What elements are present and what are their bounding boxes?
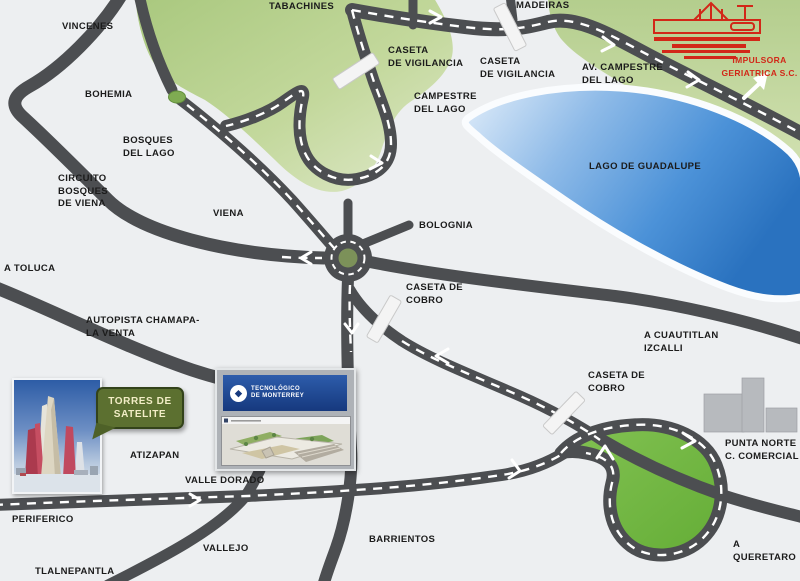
label-bohemia: BOHEMIA	[85, 89, 132, 102]
tec-banner-line2: DE MONTERREY	[251, 393, 304, 401]
torres-satelite-illustration	[14, 380, 100, 492]
label-periferico: PERIFERICO	[12, 514, 74, 527]
label-caseta-cobro-centro: CASETA DECOBRO	[406, 282, 463, 307]
torres-satelite-photo	[12, 378, 102, 494]
label-punta-norte: PUNTA NORTEC. COMERCIAL	[725, 438, 799, 463]
label-caseta-cobro-sur: CASETA DECOBRO	[588, 370, 645, 395]
label-caseta-vigilancia-1: CASETADE VIGILANCIA	[388, 45, 463, 70]
road-map: TORRES DE SATELITE ◆ TECNOLÓGICO DE MONT…	[0, 0, 800, 581]
label-a-queretaro: AQUERETARO	[733, 539, 796, 564]
bubble-text-line1: TORRES DE	[108, 395, 172, 408]
label-a-toluca: A TOLUCA	[4, 263, 55, 276]
tec-banner: ◆ TECNOLÓGICO DE MONTERREY	[223, 375, 347, 411]
campus-map-thumbnail	[221, 416, 351, 466]
label-campestre-del-lago: CAMPESTREDEL LAGO	[414, 91, 477, 116]
label-caseta-vigilancia-2: CASETADE VIGILANCIA	[480, 56, 555, 81]
label-barrientos: BARRIENTOS	[369, 534, 435, 547]
bohemia-junction-dot	[169, 91, 186, 103]
torres-satelite-bubble: TORRES DE SATELITE	[96, 387, 184, 429]
label-madeiras: MADEIRAS	[516, 0, 569, 13]
tec-monterrey-inset: ◆ TECNOLÓGICO DE MONTERREY	[215, 368, 356, 471]
label-bolognia: BOLOGNIA	[419, 220, 473, 233]
tec-shield-icon: ◆	[230, 385, 247, 402]
label-viena: VIENA	[213, 208, 244, 221]
label-vallejo: VALLEJO	[203, 543, 249, 556]
label-atizapan: ATIZAPAN	[130, 450, 179, 463]
label-bosques-del-lago: BOSQUESDEL LAGO	[123, 135, 175, 160]
label-av-campestre-del-lago: AV. CAMPESTREDEL LAGO	[582, 62, 663, 87]
label-a-cuautitlan-izcalli: A CUAUTITLANIZCALLI	[644, 330, 719, 355]
label-autopista-chamapa: AUTOPISTA CHAMAPA-LA VENTA	[86, 315, 200, 340]
label-valle-dorado: VALLE DORADO	[185, 475, 265, 488]
tec-banner-line1: TECNOLÓGICO	[251, 386, 304, 394]
bubble-text-line2: SATELITE	[114, 408, 166, 421]
roundabout-glorieta	[324, 234, 372, 282]
label-lago-de-guadalupe: LAGO DE GUADALUPE	[589, 161, 701, 174]
label-tlalnepantla: TLALNEPANTLA	[35, 566, 115, 579]
label-circuito-bosques-de-viena: CIRCUITOBOSQUESDE VIENA	[58, 173, 108, 211]
label-tabachines: TABACHINES	[269, 1, 334, 14]
map-canvas	[0, 0, 800, 581]
label-vincenes: VINCENES	[62, 21, 113, 34]
label-impulsora-geriatrica: IMPULSORAGERIATRICA S.C.	[712, 54, 800, 79]
